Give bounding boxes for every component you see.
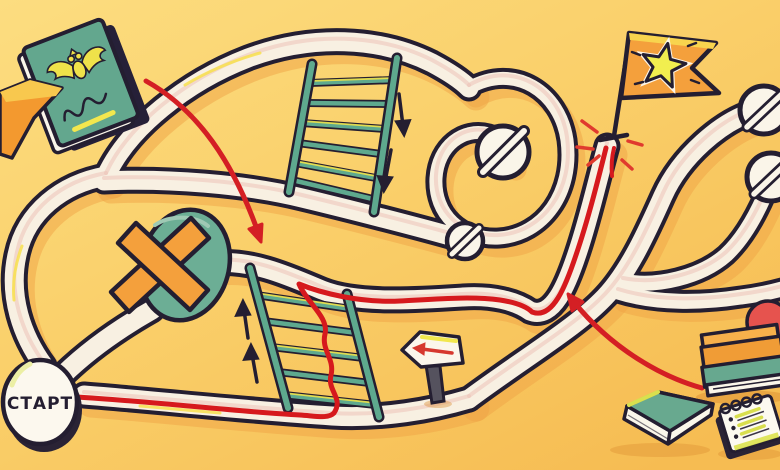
illustration-canvas: СТАРТ [0, 0, 780, 470]
start-label: СТАРТ [7, 394, 73, 414]
no-entry-icon-right-top [740, 86, 780, 134]
no-entry-icon-mid [447, 223, 483, 259]
no-entry-icon-spiral [477, 126, 529, 178]
no-entry-icon-right-bottom [747, 153, 780, 201]
